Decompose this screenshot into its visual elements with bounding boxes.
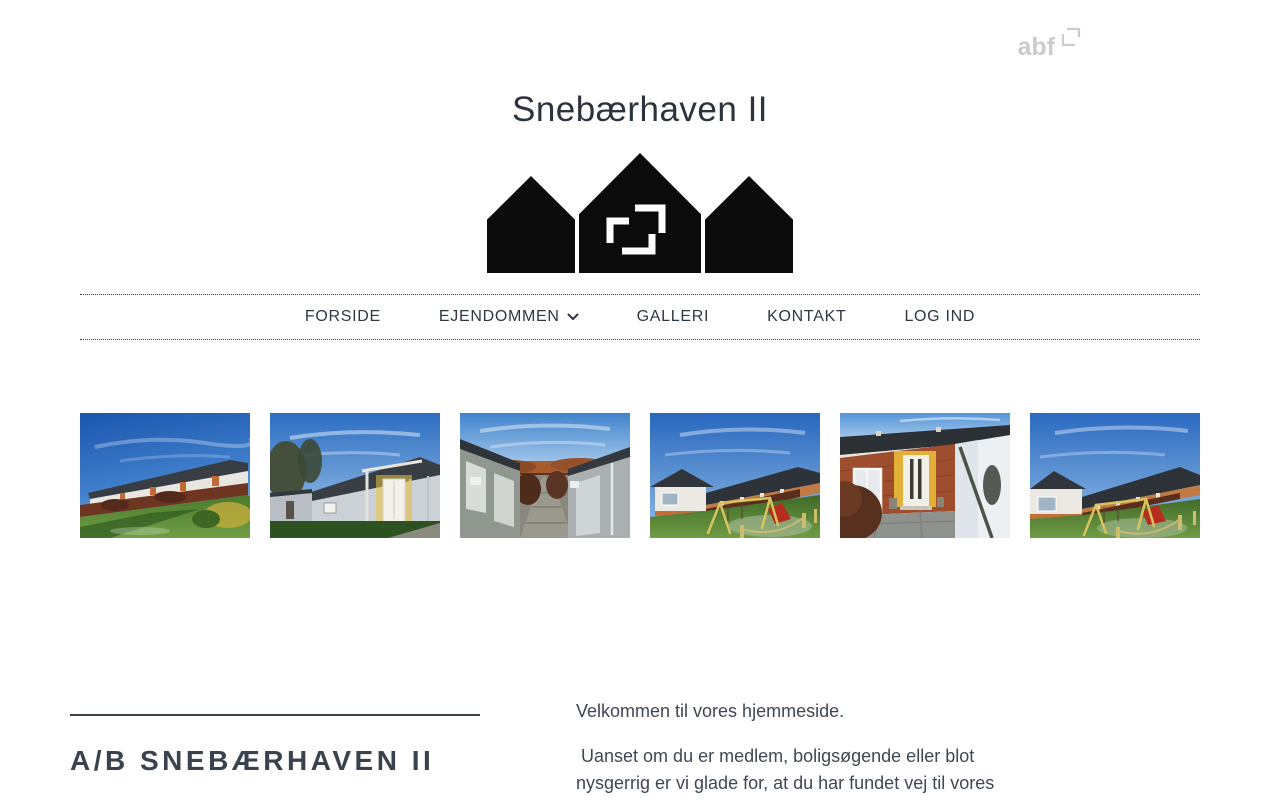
chevron-down-icon bbox=[567, 313, 579, 321]
nav-item-ejendommen[interactable]: EJENDOMMEN bbox=[439, 308, 579, 326]
gallery-image-1[interactable] bbox=[80, 413, 250, 538]
gallery-image-5[interactable] bbox=[840, 413, 1010, 538]
welcome-text: Velkommen til vores hjemmeside. bbox=[576, 698, 1026, 725]
nav-item-galleri[interactable]: GALLERI bbox=[637, 308, 710, 326]
nav-item-kontakt[interactable]: KONTAKT bbox=[767, 308, 846, 326]
abf-logo-text: abf bbox=[1018, 35, 1056, 60]
photo-gallery bbox=[80, 413, 1200, 538]
frame-icon bbox=[597, 201, 682, 271]
abf-frame-icon bbox=[1060, 26, 1082, 48]
heading-divider bbox=[70, 714, 480, 716]
about-text-column: Velkommen til vores hjemmeside. Uanset o… bbox=[576, 698, 1026, 797]
gallery-image-3[interactable] bbox=[460, 413, 630, 538]
gallery-image-6[interactable] bbox=[1030, 413, 1200, 538]
about-left-column: A/B SNEBÆRHAVEN II bbox=[70, 698, 510, 777]
nav-item-forside[interactable]: FORSIDE bbox=[305, 308, 381, 326]
house-left-icon bbox=[487, 176, 575, 273]
about-section: A/B SNEBÆRHAVEN II Velkommen til vores h… bbox=[70, 698, 1210, 797]
nav-item-log-ind[interactable]: LOG IND bbox=[904, 308, 975, 326]
gallery-image-2[interactable] bbox=[270, 413, 440, 538]
site-title: Snebærhaven II bbox=[0, 90, 1280, 130]
page: abf Snebærhaven II FORSIDE EJENDOMMEN GA… bbox=[0, 0, 1280, 800]
site-logo bbox=[0, 153, 1280, 273]
gallery-image-4[interactable] bbox=[650, 413, 820, 538]
house-middle-icon bbox=[579, 153, 701, 273]
intro-paragraph: Uanset om du er medlem, boligsøgende ell… bbox=[576, 743, 1026, 797]
about-heading: A/B SNEBÆRHAVEN II bbox=[70, 745, 510, 777]
house-right-icon bbox=[705, 176, 793, 273]
main-nav: FORSIDE EJENDOMMEN GALLERI KONTAKT LOG I… bbox=[80, 294, 1200, 340]
abf-logo[interactable]: abf bbox=[1018, 26, 1083, 60]
